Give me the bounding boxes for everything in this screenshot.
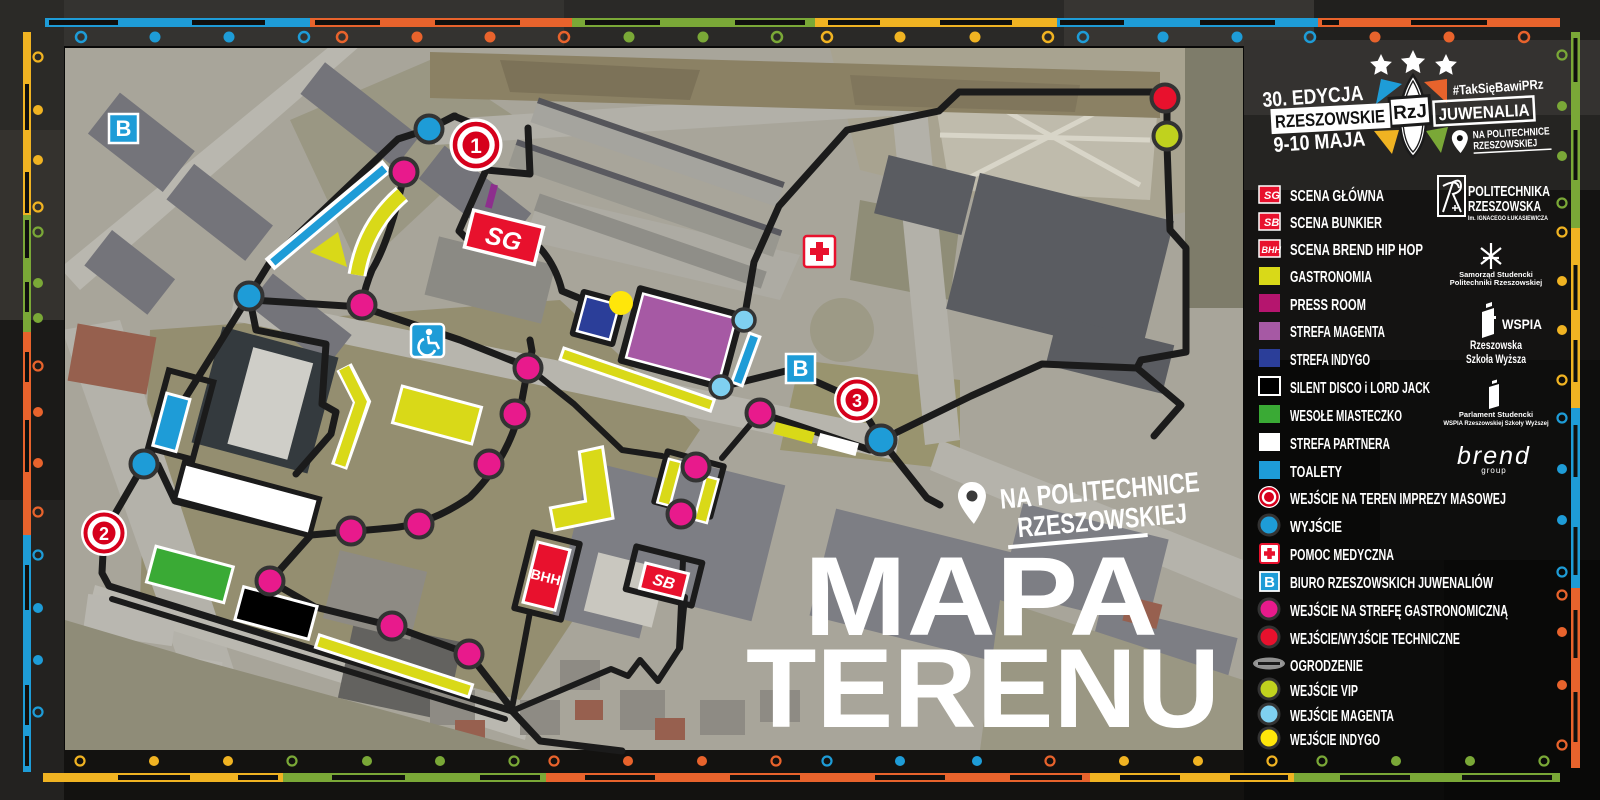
svg-text:OGRODZENIE: OGRODZENIE <box>1290 658 1363 675</box>
svg-text:PRESS ROOM: PRESS ROOM <box>1290 297 1366 314</box>
svg-text:2: 2 <box>99 524 109 544</box>
svg-text:WSPIA Rzeszowskiej Szkoły Wyżs: WSPIA Rzeszowskiej Szkoły Wyższej <box>1443 421 1549 427</box>
svg-text:WEJŚCIE/WYJŚCIE TECHNICZNE: WEJŚCIE/WYJŚCIE TECHNICZNE <box>1290 629 1460 648</box>
svg-text:BIURO RZESZOWSKICH JUWENALIÓW: BIURO RZESZOWSKICH JUWENALIÓW <box>1290 573 1494 592</box>
svg-text:BHH: BHH <box>1262 245 1282 255</box>
svg-text:Parlament Studencki: Parlament Studencki <box>1459 410 1533 419</box>
svg-text:B: B <box>793 356 809 381</box>
svg-text:group: group <box>1481 466 1506 475</box>
svg-text:WESOŁE MIASTECZKO: WESOŁE MIASTECZKO <box>1290 408 1402 425</box>
svg-text:POMOC MEDYCZNA: POMOC MEDYCZNA <box>1290 547 1394 564</box>
svg-text:WYJŚCIE: WYJŚCIE <box>1290 517 1342 536</box>
svg-text:WEJŚCIE NA STREFĘ GASTRONOMICZ: WEJŚCIE NA STREFĘ GASTRONOMICZNĄ <box>1290 601 1508 620</box>
svg-text:GASTRONOMIA: GASTRONOMIA <box>1290 269 1372 286</box>
svg-text:Politechniki Rzeszowskiej: Politechniki Rzeszowskiej <box>1450 278 1543 287</box>
svg-text:3: 3 <box>852 391 862 411</box>
svg-text:Im. IGNACEGO ŁUKASIEWICZA: Im. IGNACEGO ŁUKASIEWICZA <box>1468 215 1548 222</box>
svg-text:WEJŚCIE NA TEREN IMPREZY MASOW: WEJŚCIE NA TEREN IMPREZY MASOWEJ <box>1290 489 1506 508</box>
svg-text:WEJŚCIE VIP: WEJŚCIE VIP <box>1290 681 1358 700</box>
svg-text:SG: SG <box>1264 190 1280 202</box>
svg-text:B: B <box>116 116 132 141</box>
svg-text:SCENA BREND HIP HOP: SCENA BREND HIP HOP <box>1290 242 1423 259</box>
svg-text:1: 1 <box>470 135 482 158</box>
svg-text:Rzeszowska: Rzeszowska <box>1470 338 1522 352</box>
svg-text:SCENA BUNKIER: SCENA BUNKIER <box>1290 215 1382 232</box>
svg-text:SCENA GŁÓWNA: SCENA GŁÓWNA <box>1290 186 1384 205</box>
svg-text:TERENU: TERENU <box>746 626 1220 751</box>
svg-text:WEJŚCIE MAGENTA: WEJŚCIE MAGENTA <box>1290 706 1394 725</box>
svg-text:TOALETY: TOALETY <box>1290 464 1342 481</box>
svg-text:POLITECHNIKA: POLITECHNIKA <box>1468 184 1550 200</box>
svg-text:RzJ: RzJ <box>1393 101 1428 124</box>
svg-text:STREFA MAGENTA: STREFA MAGENTA <box>1290 324 1385 341</box>
svg-text:STREFA INDYGO: STREFA INDYGO <box>1290 352 1370 369</box>
svg-text:WSPIA: WSPIA <box>1502 316 1542 332</box>
svg-text:SB: SB <box>1264 217 1279 229</box>
svg-text:B: B <box>1264 574 1275 591</box>
svg-text:STREFA PARTNERA: STREFA PARTNERA <box>1290 436 1390 453</box>
svg-text:RZESZOWSKA: RZESZOWSKA <box>1468 199 1541 215</box>
svg-text:WEJŚCIE INDYGO: WEJŚCIE INDYGO <box>1290 730 1380 749</box>
svg-text:SILENT DISCO i LORD JACK: SILENT DISCO i LORD JACK <box>1290 380 1430 397</box>
svg-text:Szkoła Wyższa: Szkoła Wyższa <box>1466 352 1526 366</box>
